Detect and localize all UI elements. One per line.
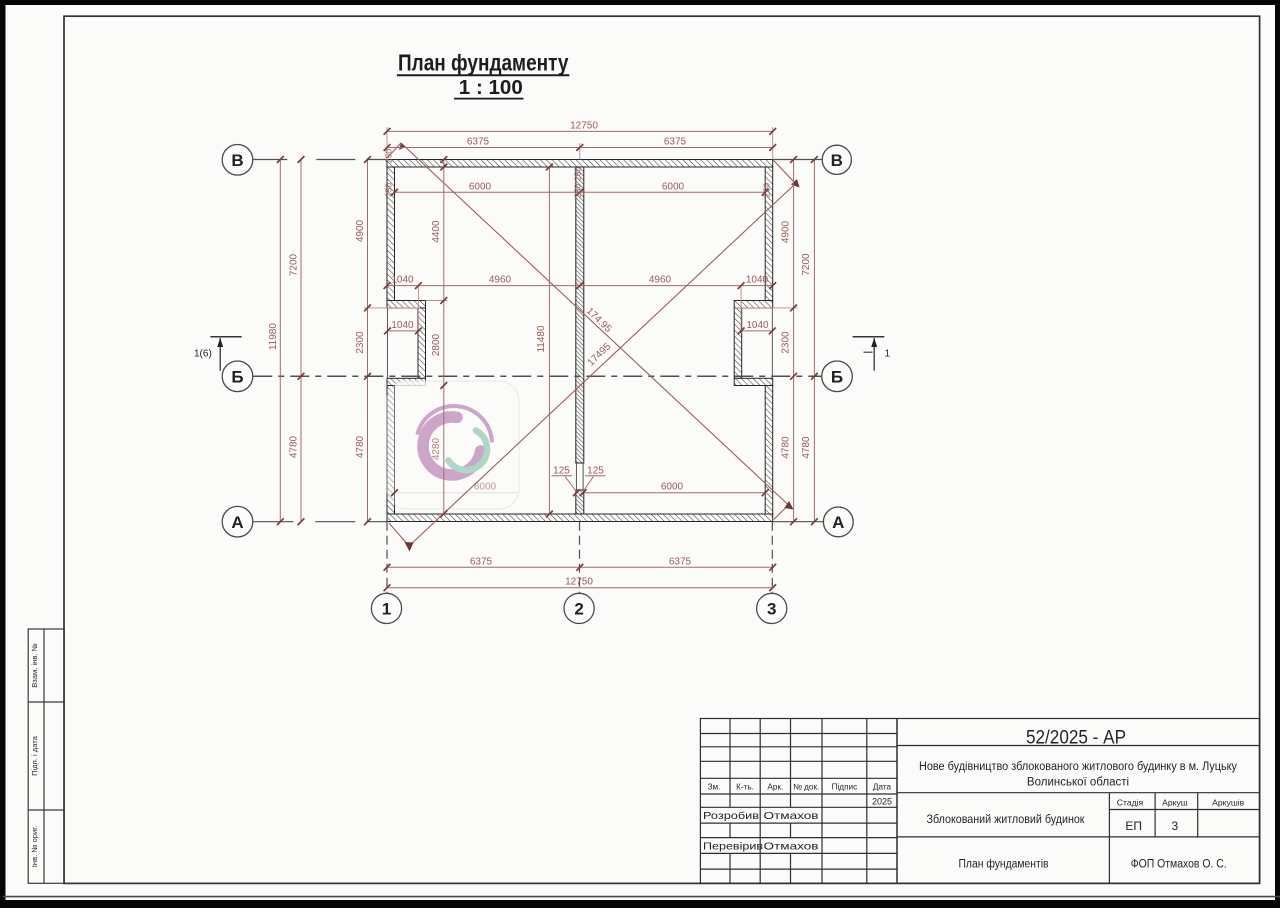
svg-text:Інв. № ориг.: Інв. № ориг.: [30, 826, 39, 867]
svg-text:4780: 4780: [781, 436, 792, 459]
svg-text:6000: 6000: [469, 181, 492, 192]
svg-text:250: 250: [573, 167, 583, 181]
svg-text:1040: 1040: [391, 320, 414, 331]
svg-text:2: 2: [574, 600, 583, 619]
svg-text:№ док.: № док.: [793, 783, 819, 792]
svg-text:6375: 6375: [470, 556, 493, 567]
svg-text:7200: 7200: [289, 253, 300, 276]
svg-text:План фундаментів: План фундаментів: [959, 858, 1049, 870]
svg-text:Арк.: Арк.: [767, 783, 783, 792]
svg-text:6000: 6000: [474, 482, 497, 493]
svg-text:4900: 4900: [355, 219, 366, 242]
svg-text:Зблокований житловий будинок: Зблокований житловий будинок: [927, 812, 1086, 826]
svg-text:Стадія: Стадія: [1117, 798, 1144, 808]
svg-text:Перевірив: Перевірив: [703, 840, 763, 852]
svg-text:Дата: Дата: [873, 783, 892, 792]
svg-text:6375: 6375: [664, 137, 687, 148]
svg-text:4960: 4960: [649, 275, 672, 286]
svg-text:А: А: [231, 513, 243, 532]
svg-text:1: 1: [382, 600, 391, 619]
svg-text:6000: 6000: [661, 482, 684, 493]
svg-text:Нове будівництво зблокованого: Нове будівництво зблокованого житлового …: [919, 761, 1237, 773]
svg-text:В: В: [831, 151, 843, 170]
svg-text:125: 125: [553, 465, 570, 476]
svg-text:2300: 2300: [781, 331, 792, 354]
svg-text:Аркушів: Аркушів: [1212, 798, 1244, 808]
svg-text:250: 250: [384, 149, 394, 163]
svg-text:1 : 100: 1 : 100: [459, 77, 523, 99]
svg-text:Взам. інв. №: Взам. інв. №: [30, 643, 39, 688]
svg-text:4960: 4960: [489, 275, 512, 286]
svg-text:План фундаменту: План фундаменту: [398, 50, 569, 76]
svg-text:1: 1: [885, 349, 891, 360]
svg-text:К-ть.: К-ть.: [736, 783, 754, 792]
svg-text:7200: 7200: [801, 253, 812, 276]
svg-text:Аркуш: Аркуш: [1162, 798, 1188, 808]
svg-text:2300: 2300: [355, 331, 366, 354]
svg-text:125: 125: [587, 465, 604, 476]
svg-text:2800: 2800: [431, 333, 442, 356]
svg-text:11480: 11480: [536, 325, 547, 353]
svg-text:4400: 4400: [431, 220, 442, 243]
svg-text:Розробив: Розробив: [703, 810, 760, 822]
svg-text:4780: 4780: [289, 435, 300, 458]
svg-text:6375: 6375: [669, 556, 692, 567]
svg-text:1040: 1040: [391, 275, 414, 286]
svg-text:12750: 12750: [565, 577, 593, 588]
svg-text:Підп. і дата: Підп. і дата: [30, 735, 39, 776]
svg-text:12750: 12750: [570, 120, 598, 131]
svg-text:2025: 2025: [872, 796, 892, 806]
svg-text:4280: 4280: [431, 437, 442, 460]
svg-text:3: 3: [1172, 819, 1179, 833]
svg-text:11980: 11980: [268, 323, 279, 351]
svg-text:3: 3: [767, 600, 776, 619]
svg-text:Б: Б: [831, 368, 843, 387]
svg-text:4780: 4780: [801, 436, 812, 459]
svg-text:Отмахов: Отмахов: [764, 840, 820, 852]
svg-text:А: А: [832, 513, 844, 532]
svg-text:250: 250: [384, 183, 394, 197]
svg-text:Зм.: Зм.: [708, 783, 721, 792]
svg-text:1040: 1040: [746, 320, 769, 331]
svg-text:1040: 1040: [746, 275, 769, 286]
svg-text:250: 250: [573, 184, 583, 198]
svg-text:250: 250: [762, 183, 772, 197]
svg-text:Б: Б: [231, 368, 243, 387]
svg-text:ЕП: ЕП: [1125, 819, 1142, 833]
svg-text:В: В: [231, 151, 243, 170]
svg-text:Волинської області: Волинської області: [1027, 777, 1129, 789]
svg-text:4900: 4900: [781, 220, 792, 243]
svg-text:Підпис: Підпис: [832, 783, 858, 792]
svg-text:1(6): 1(6): [194, 349, 212, 360]
svg-text:6000: 6000: [662, 181, 685, 192]
svg-text:4780: 4780: [355, 435, 366, 458]
svg-text:6375: 6375: [467, 137, 490, 148]
svg-text:Отмахов: Отмахов: [764, 810, 820, 822]
svg-text:52/2025 - АР: 52/2025 - АР: [1026, 728, 1126, 749]
svg-text:ФОП Отмахов О. С.: ФОП Отмахов О. С.: [1131, 858, 1227, 870]
